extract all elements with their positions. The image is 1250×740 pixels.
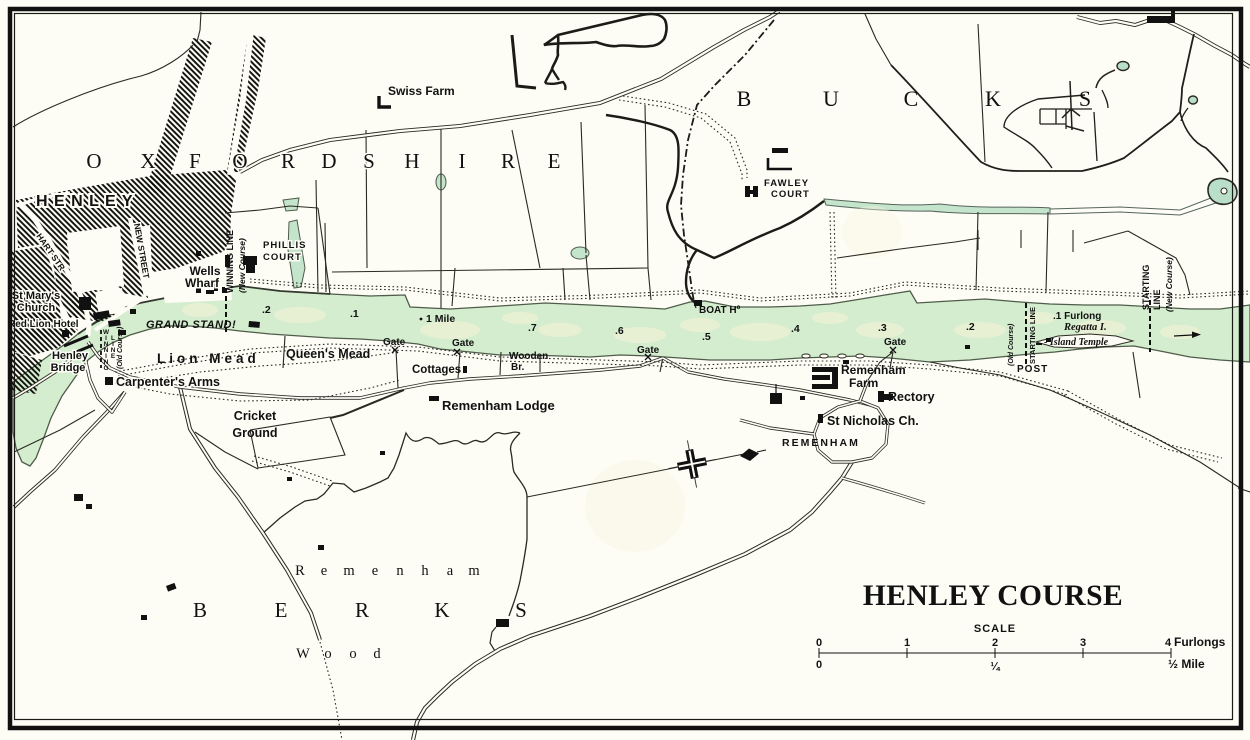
svg-text:.5: .5 [702, 331, 711, 343]
svg-text:E: E [275, 598, 288, 622]
svg-text:O: O [232, 149, 247, 173]
svg-text:Queen's Mead: Queen's Mead [286, 347, 370, 361]
svg-text:Swiss Farm: Swiss Farm [388, 84, 455, 98]
svg-text:E: E [111, 353, 116, 360]
svg-text:.1 Furlong: .1 Furlong [1053, 311, 1101, 322]
svg-text:n: n [396, 563, 404, 579]
svg-text:Gate: Gate [637, 345, 660, 356]
svg-text:o: o [324, 646, 331, 662]
svg-text:O: O [86, 149, 101, 173]
svg-text:Cottages: Cottages [412, 364, 461, 376]
svg-text:BOAT Hº: BOAT Hº [699, 305, 741, 316]
svg-text:.2: .2 [262, 304, 271, 316]
svg-text:Carpenter's Arms: Carpenter's Arms [116, 375, 220, 389]
svg-text:GRAND STAND!: GRAND STAND! [146, 319, 236, 331]
svg-text:FAWLEY: FAWLEY [764, 178, 809, 189]
svg-text:R: R [501, 149, 515, 173]
svg-text:U: U [823, 86, 839, 111]
svg-text:.4: .4 [791, 323, 800, 335]
svg-text:4: 4 [1165, 637, 1172, 649]
svg-text:.6: .6 [615, 325, 624, 337]
svg-text:X: X [140, 149, 155, 173]
svg-text:Red Lion Hotel: Red Lion Hotel [8, 319, 79, 330]
svg-text:Ground: Ground [232, 426, 277, 440]
svg-text:D: D [321, 149, 336, 173]
svg-text:¼: ¼ [990, 661, 1000, 673]
svg-text:Regatta I.: Regatta I. [1063, 322, 1107, 333]
svg-text:S: S [515, 598, 527, 622]
svg-text:COURT: COURT [771, 189, 810, 200]
svg-text:a: a [447, 563, 454, 579]
svg-text:Gate: Gate [452, 338, 475, 349]
svg-text:3: 3 [1080, 637, 1086, 649]
svg-text:H E N L E Y: H E N L E Y [36, 193, 134, 210]
svg-text:R: R [355, 598, 369, 622]
svg-text:R: R [295, 563, 305, 579]
svg-text:Henley: Henley [52, 350, 89, 362]
svg-text:(New Course): (New Course) [237, 238, 247, 293]
svg-text:St Nicholas Ch.: St Nicholas Ch. [827, 414, 919, 428]
svg-text:COURT: COURT [263, 252, 302, 263]
svg-text:½ Mile: ½ Mile [1168, 657, 1205, 671]
svg-text:Gate: Gate [383, 337, 406, 348]
svg-text:H: H [404, 149, 419, 173]
svg-text:C: C [904, 86, 919, 111]
svg-text:R: R [281, 149, 295, 173]
svg-text:(Old Course): (Old Course) [1008, 323, 1015, 366]
svg-text:m: m [343, 563, 355, 579]
svg-text:d: d [373, 646, 381, 662]
svg-text:Wooden: Wooden [509, 351, 548, 362]
svg-text:PHILLIS: PHILLIS [263, 240, 306, 251]
svg-text:Farm: Farm [849, 376, 878, 390]
svg-text:h: h [421, 563, 429, 579]
svg-text:.7: .7 [528, 322, 537, 334]
svg-text:G: G [104, 365, 109, 372]
svg-text:(Old Course): (Old Course) [117, 326, 124, 369]
svg-text:HENLEY COURSE: HENLEY COURSE [863, 580, 1123, 612]
svg-text:WINNING LINE: WINNING LINE [225, 230, 235, 293]
svg-text:1: 1 [904, 637, 910, 649]
svg-text:Furlongs: Furlongs [1174, 635, 1226, 649]
svg-text:Bridge: Bridge [51, 362, 86, 374]
svg-text:E: E [548, 149, 561, 173]
svg-text:SCALE: SCALE [974, 623, 1016, 635]
svg-text:Rectory: Rectory [888, 390, 935, 404]
svg-text:Remenham: Remenham [841, 363, 906, 377]
svg-text:Remenham Lodge: Remenham Lodge [442, 398, 555, 413]
svg-text:.1: .1 [350, 308, 359, 320]
svg-text:0: 0 [816, 659, 822, 671]
svg-text:- Island Temple: - Island Temple [1044, 337, 1109, 348]
svg-text:I: I [459, 149, 466, 173]
svg-text:0: 0 [816, 637, 822, 649]
svg-text:1 Mile: 1 Mile [426, 313, 455, 325]
svg-text:Br.: Br. [511, 362, 525, 373]
svg-text:(New Course): (New Course) [1164, 257, 1174, 312]
svg-text:K: K [985, 86, 1001, 111]
svg-text:St Mary's: St Mary's [12, 290, 60, 302]
svg-text:B: B [193, 598, 207, 622]
svg-text:e: e [372, 563, 378, 579]
svg-text:W: W [296, 646, 310, 662]
svg-text:.2: .2 [966, 321, 975, 333]
svg-text:m: m [468, 563, 480, 579]
svg-text:Wharf: Wharf [185, 276, 220, 290]
svg-text:S: S [363, 149, 375, 173]
svg-text:LINE: LINE [1152, 289, 1162, 310]
svg-text:e: e [321, 563, 327, 579]
svg-text:Gate: Gate [884, 337, 907, 348]
svg-text:Lion Mead: Lion Mead [157, 351, 260, 366]
svg-text:F: F [189, 149, 201, 173]
svg-text:o: o [349, 646, 356, 662]
svg-text:2: 2 [992, 637, 998, 649]
svg-text:Church: Church [17, 302, 56, 314]
svg-text:.3: .3 [878, 322, 887, 334]
svg-text:STARTING: STARTING [1141, 265, 1151, 310]
svg-text:REMENHAM: REMENHAM [782, 437, 860, 449]
svg-text:STARTING LINE: STARTING LINE [1028, 307, 1037, 364]
svg-text:S: S [1079, 86, 1091, 111]
svg-text:POST: POST [1017, 364, 1048, 375]
svg-text:K: K [434, 598, 449, 622]
svg-text:Cricket: Cricket [234, 409, 277, 423]
svg-text:B: B [737, 86, 752, 111]
